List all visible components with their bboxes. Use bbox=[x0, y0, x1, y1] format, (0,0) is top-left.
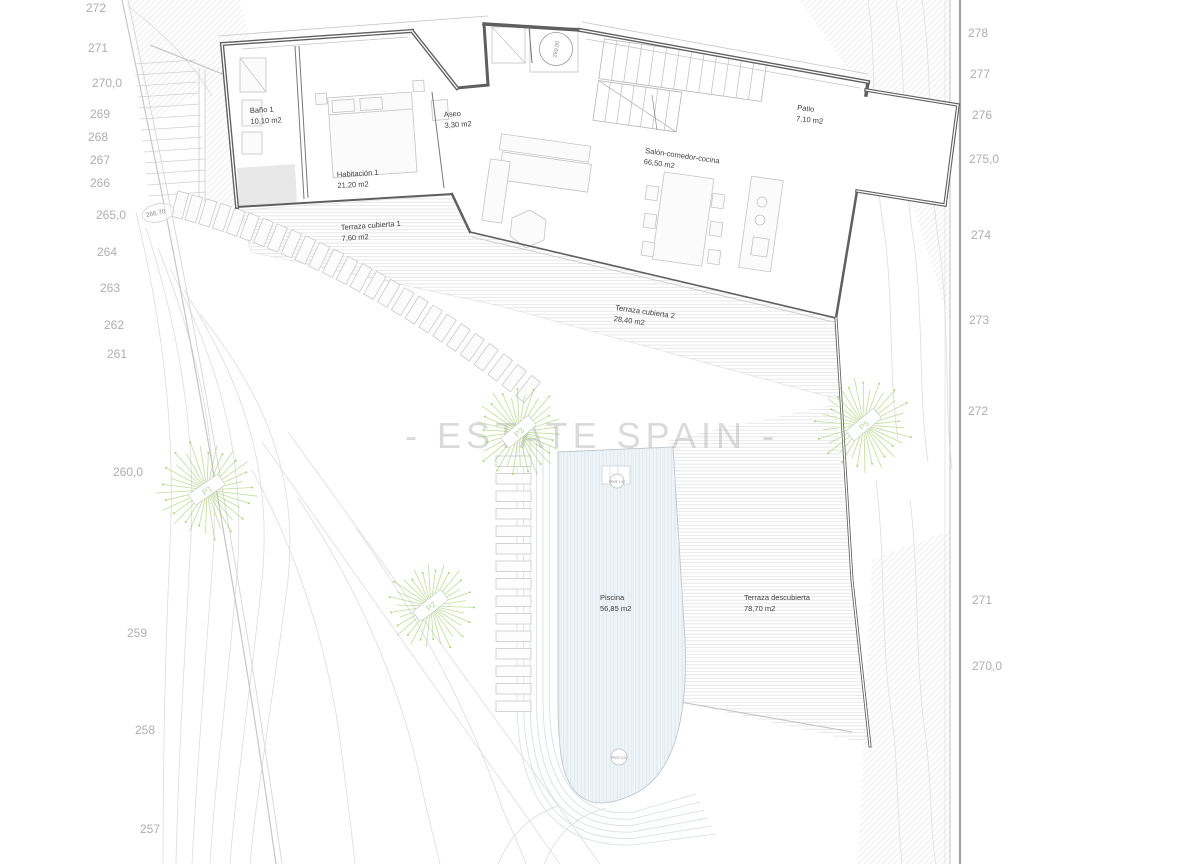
plan-svg: PROF 1,50 PROF 2,00 bbox=[0, 0, 1200, 864]
contour-line bbox=[544, 808, 606, 864]
tree-ray-tip bbox=[482, 460, 484, 462]
elev-left-11: 261 bbox=[107, 347, 127, 361]
stair-tread bbox=[141, 126, 201, 130]
elev-right-1: 277 bbox=[970, 67, 990, 81]
pool-step bbox=[496, 631, 531, 642]
elev-left-15: 257 bbox=[140, 822, 160, 836]
tree-ray-tip bbox=[848, 387, 850, 389]
tree-ray-tip bbox=[496, 470, 498, 472]
tree-ray-tip bbox=[242, 518, 244, 520]
tree-ray-tip bbox=[898, 420, 900, 422]
path-level-marker: 266,70 bbox=[140, 201, 175, 225]
tree-ray-tip bbox=[892, 445, 894, 447]
room-piscina-name: Piscina bbox=[600, 593, 625, 602]
tree-ray bbox=[431, 606, 463, 636]
tree-ray-tip bbox=[185, 521, 187, 523]
room-descubierta-area: 78,70 m2 bbox=[744, 604, 775, 613]
tree-ray-tip bbox=[540, 463, 542, 465]
elev-left-1: 271 bbox=[88, 41, 108, 55]
pool-step bbox=[496, 701, 531, 712]
elev-right-3: 275,0 bbox=[969, 152, 999, 166]
elev-left-4: 268 bbox=[88, 130, 108, 144]
room-patio-name: Patio bbox=[797, 103, 815, 114]
tree-ray-tip bbox=[512, 473, 514, 475]
tree-ray-tip bbox=[469, 621, 471, 623]
tree-ray-tip bbox=[189, 441, 191, 443]
shaded-floor-patch bbox=[237, 164, 297, 208]
tree-ray bbox=[864, 425, 894, 457]
elev-right-6: 272 bbox=[968, 404, 988, 418]
elev-right-7: 271 bbox=[972, 593, 992, 607]
tree-ray-tip bbox=[502, 393, 504, 395]
tree-ray-tip bbox=[251, 487, 253, 489]
tree-ray-tip bbox=[548, 395, 550, 397]
pool-depth-top-label: PROF 1,50 bbox=[609, 480, 625, 484]
pool-step bbox=[496, 474, 531, 485]
contour-line bbox=[288, 432, 600, 864]
room-piscina-area: 56,85 m2 bbox=[600, 604, 631, 613]
contour-line bbox=[136, 212, 171, 864]
tree-ray-tip bbox=[862, 382, 864, 384]
tree-ray-tip bbox=[486, 441, 488, 443]
tree-ray-tip bbox=[389, 596, 391, 598]
tree-ray-tip bbox=[198, 525, 200, 527]
garden-step bbox=[171, 191, 188, 219]
elev-left-3: 269 bbox=[90, 107, 110, 121]
pool-step bbox=[496, 491, 531, 502]
elev-left-12: 260,0 bbox=[113, 465, 143, 479]
tree-ray-tip bbox=[871, 463, 873, 465]
pool-step bbox=[496, 544, 531, 555]
room-descubierta-name: Terraza descubierta bbox=[744, 593, 811, 602]
pool-step bbox=[496, 526, 531, 537]
room-aseo-area: 3,30 m2 bbox=[444, 119, 472, 130]
basin bbox=[242, 132, 262, 154]
tree-ray-tip bbox=[165, 467, 167, 469]
room-aseo-name: Aseo bbox=[444, 109, 462, 119]
tree-ray-tip bbox=[162, 483, 164, 485]
tree-ray-tip bbox=[841, 461, 843, 463]
pool-step bbox=[496, 596, 531, 607]
room-habitacion-area: 21,20 m2 bbox=[337, 179, 369, 190]
elevation-labels-left: 272 271 270,0 269 268 267 266 265,0 264 … bbox=[86, 1, 160, 836]
tree-ray-tip bbox=[906, 402, 908, 404]
tree-ray-tip bbox=[407, 634, 409, 636]
stair-tread bbox=[147, 181, 206, 185]
pool-depth-bottom-label: PROF 2,00 bbox=[611, 756, 627, 760]
tree-ray-tip bbox=[827, 452, 829, 454]
elev-left-0: 272 bbox=[86, 1, 106, 15]
tree-ray-tip bbox=[214, 538, 216, 540]
contour-line bbox=[158, 248, 214, 864]
tree-ray-tip bbox=[837, 396, 839, 398]
tree-ray-tip bbox=[894, 389, 896, 391]
elevation-labels-right: 278 277 276 275,0 274 273 272 271 270,0 bbox=[968, 26, 1002, 673]
tree-ray-tip bbox=[548, 452, 550, 454]
tree-ray-tip bbox=[411, 579, 413, 581]
stair-tread bbox=[145, 159, 204, 163]
elev-right-4: 274 bbox=[971, 228, 991, 242]
pool-step bbox=[496, 614, 531, 625]
tree-ray-tip bbox=[390, 611, 392, 613]
room-bano-name: Baño 1 bbox=[250, 105, 274, 115]
tree-ray-tip bbox=[460, 579, 462, 581]
tree-ray-tip bbox=[420, 639, 422, 641]
tree-ray-tip bbox=[397, 625, 399, 627]
contour-line bbox=[170, 268, 239, 864]
elev-left-9: 263 bbox=[100, 281, 120, 295]
tree-ray-tip bbox=[818, 438, 820, 440]
slope-hatch-bottom-right bbox=[858, 530, 950, 864]
elev-right-8: 270,0 bbox=[972, 659, 1002, 673]
elev-left-2: 270,0 bbox=[92, 76, 122, 90]
elev-left-6: 266 bbox=[90, 176, 110, 190]
elev-right-2: 276 bbox=[972, 108, 992, 122]
tree-ray-tip bbox=[432, 638, 434, 640]
pool-step bbox=[496, 579, 531, 590]
tree-ray-tip bbox=[856, 465, 858, 467]
pool-step bbox=[496, 561, 531, 572]
tree-ray-tip bbox=[230, 531, 232, 533]
tree-ray-tip bbox=[245, 471, 247, 473]
tree-ray-tip bbox=[878, 383, 880, 385]
pool-side-steps bbox=[496, 456, 531, 712]
stair-tread bbox=[142, 137, 202, 141]
tree-ray-tip bbox=[548, 415, 550, 417]
room-bano-area: 10,10 m2 bbox=[250, 115, 282, 126]
tree-ray-tip bbox=[484, 416, 486, 418]
tree-ray-tip bbox=[221, 453, 223, 455]
elev-left-13: 259 bbox=[127, 626, 147, 640]
contour-line bbox=[298, 498, 440, 864]
elev-left-7: 265,0 bbox=[96, 208, 126, 222]
tree-ray-tip bbox=[814, 420, 816, 422]
contour-line bbox=[200, 314, 290, 864]
tree-ray-tip bbox=[462, 635, 464, 637]
elev-left-14: 258 bbox=[135, 723, 155, 737]
tree-ray-tip bbox=[552, 439, 554, 441]
pool-step bbox=[496, 649, 531, 660]
tree-ray-tip bbox=[517, 388, 519, 390]
tree-ray-tip bbox=[422, 572, 424, 574]
elev-left-10: 262 bbox=[104, 318, 124, 332]
tree-ray-tip bbox=[235, 460, 237, 462]
pool-step bbox=[496, 684, 531, 695]
tree-ray-tip bbox=[207, 452, 209, 454]
tree-ray-tip bbox=[175, 452, 177, 454]
tree-ray-tip bbox=[910, 436, 912, 438]
tree-ray-tip bbox=[884, 456, 886, 458]
pool-step bbox=[496, 666, 531, 677]
tree-ray-tip bbox=[248, 502, 250, 504]
tree-ray-tip bbox=[448, 572, 450, 574]
tree-ray-tip bbox=[527, 471, 529, 473]
tree-ray-tip bbox=[491, 403, 493, 405]
elev-right-5: 273 bbox=[969, 313, 989, 327]
tree-ray-tip bbox=[393, 581, 395, 583]
watermark: - ESTATE SPAIN - bbox=[405, 415, 779, 456]
pool: PROF 1,50 PROF 2,00 bbox=[558, 447, 685, 803]
tree-ray-tip bbox=[173, 512, 175, 514]
tree-ray-tip bbox=[483, 429, 485, 431]
pool-step bbox=[496, 509, 531, 520]
tree-ray-tip bbox=[554, 427, 556, 429]
tree-ray-tip bbox=[830, 408, 832, 410]
elev-left-8: 264 bbox=[97, 245, 117, 259]
tree-ray-tip bbox=[449, 646, 451, 648]
tree-ray-tip bbox=[434, 570, 436, 572]
tree-ray-tip bbox=[533, 389, 535, 391]
tree-ray-tip bbox=[165, 499, 167, 501]
elev-left-5: 267 bbox=[90, 153, 110, 167]
site-plan-drawing: PROF 1,50 PROF 2,00 bbox=[0, 0, 1200, 864]
elev-right-0: 278 bbox=[968, 26, 988, 40]
room-terraza1-area: 7,60 m2 bbox=[341, 232, 369, 243]
stair-tread bbox=[146, 170, 205, 174]
tree-ray-tip bbox=[469, 591, 471, 593]
tree-ray-tip bbox=[473, 606, 475, 608]
